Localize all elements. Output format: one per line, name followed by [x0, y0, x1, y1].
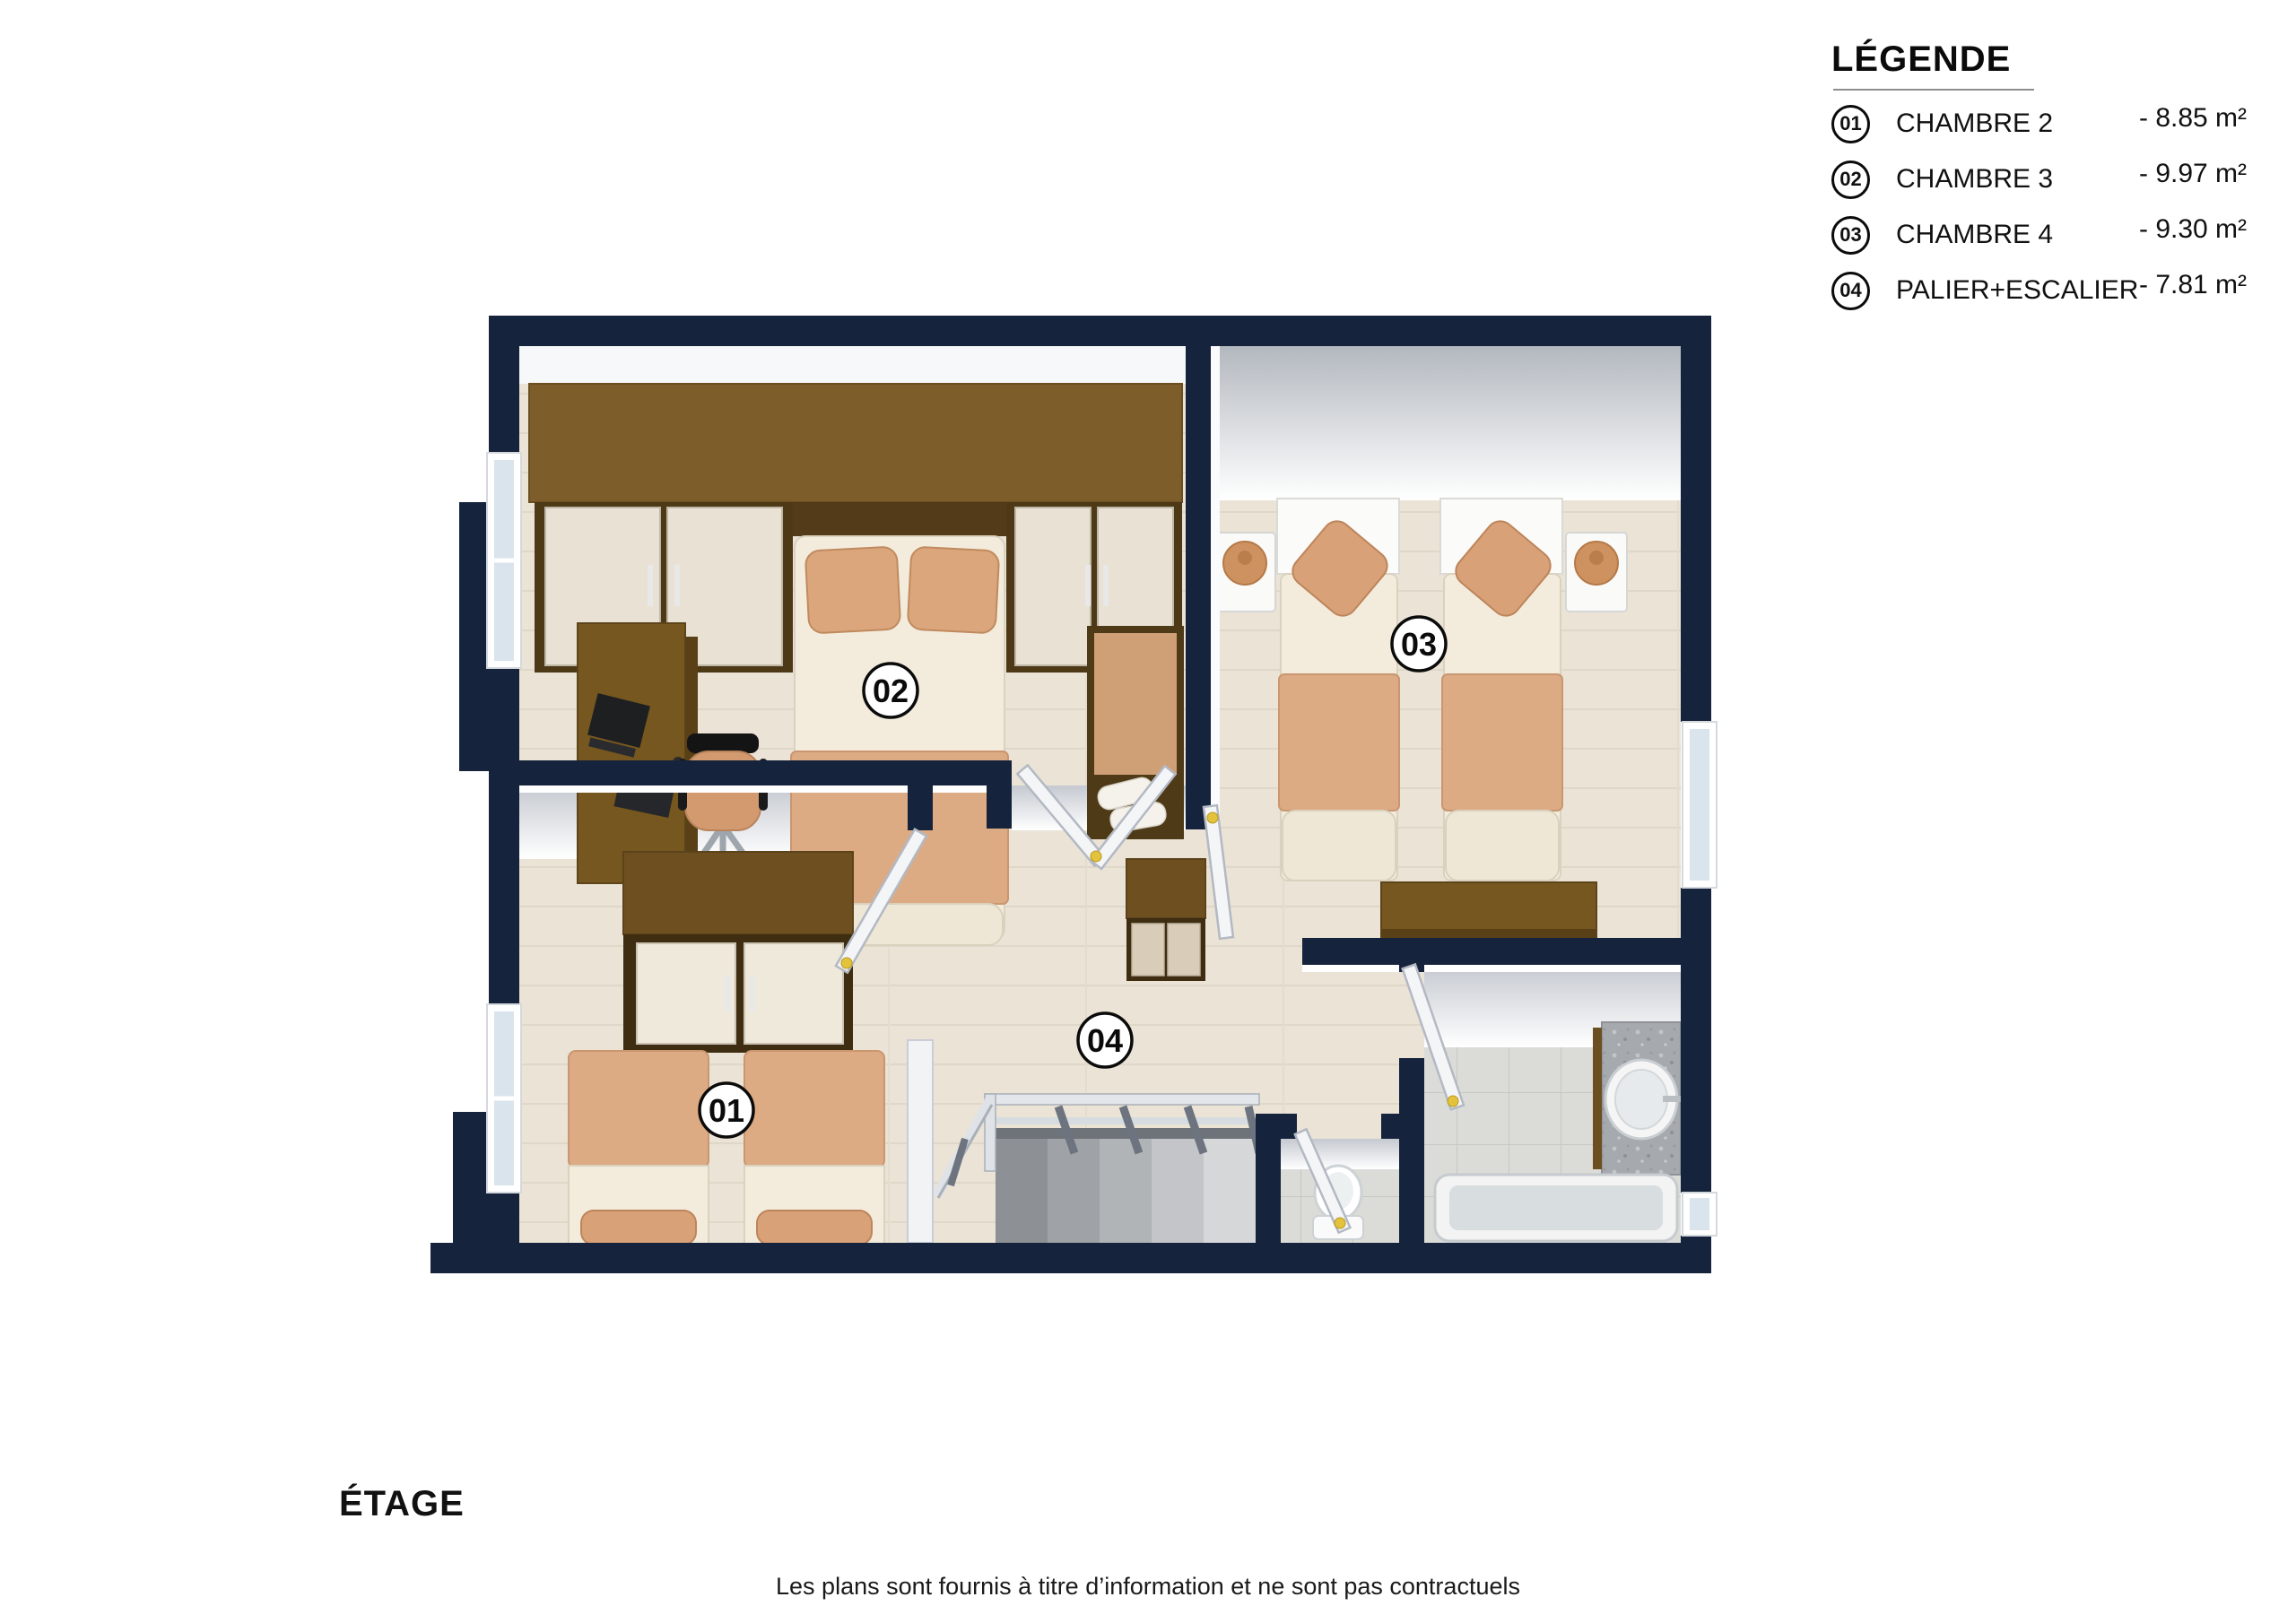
blanket: [1279, 674, 1399, 811]
legend-badge-02: 02: [1831, 161, 1870, 199]
room-03-wall-face: [1211, 346, 1681, 500]
badge-room-02: 02: [864, 664, 918, 717]
legend-area-04: - 7.81 m²: [2139, 270, 2247, 300]
pillow: [805, 546, 901, 633]
legend-area-01: - 8.85 m²: [2139, 103, 2247, 134]
legend-badge-04: 04: [1831, 272, 1870, 310]
twin-bed: [569, 1051, 709, 1245]
legend-row-03: 03 CHAMBRE 4 - 9.30 m²: [1831, 207, 2280, 263]
legend-row-02: 02 CHAMBRE 3 - 9.97 m²: [1831, 152, 2280, 207]
stair-tread: [1100, 1128, 1152, 1243]
window-room-02: [487, 453, 521, 668]
exterior-wall-bottom: [430, 1243, 1711, 1273]
wardrobe-handle: [1085, 565, 1091, 606]
disclaimer-text: Les plans sont fournis à titre d’informa…: [0, 1573, 2296, 1601]
legend-label-01: CHAMBRE 2: [1896, 108, 2139, 139]
corridor-cabinet: [1126, 859, 1205, 981]
legend: LÉGENDE 01 CHAMBRE 2 - 8.85 m² 02 CHAMBR…: [1831, 39, 2280, 318]
sink-basin: [1615, 1070, 1667, 1129]
badge-number: 04: [1087, 1022, 1123, 1059]
lamp-top: [1589, 551, 1604, 565]
exterior-wall-left: [489, 668, 519, 1004]
room-02-wall-face: [519, 346, 1186, 384]
window-room-01: [487, 1004, 521, 1193]
cabinet-door: [1132, 924, 1164, 976]
bridge-cabinet-front: [793, 502, 1006, 536]
door-handle: [1335, 1218, 1345, 1228]
pillow: [581, 1211, 696, 1245]
legend-row-01: 01 CHAMBRE 2 - 8.85 m²: [1831, 96, 2280, 152]
exterior-wall-right: [1681, 316, 1711, 722]
wall-room03-corridor: [1302, 938, 1681, 965]
window-glass: [1690, 729, 1709, 881]
blanket: [569, 1051, 709, 1167]
foot-sheet: [1446, 811, 1559, 881]
wardrobe-door: [1015, 508, 1091, 665]
exterior-wall-top: [489, 316, 1711, 346]
legend-label-03: CHAMBRE 4: [1896, 220, 2139, 250]
legend-label-02: CHAMBRE 3: [1896, 164, 2139, 195]
legend-rule: [1833, 89, 2034, 91]
lamp-top: [1238, 551, 1252, 565]
bench-cushion: [1094, 633, 1177, 775]
twin-bed: [1440, 499, 1562, 881]
blanket: [1442, 674, 1562, 811]
wardrobe-door: [637, 943, 735, 1044]
badge-room-01: 01: [700, 1083, 753, 1137]
legend-title: LÉGENDE: [1831, 39, 2280, 80]
door-handle: [1448, 1096, 1458, 1107]
legend-row-04: 04 PALIER+ESCALIER - 7.81 m²: [1831, 263, 2280, 318]
badge-number: 03: [1401, 626, 1437, 663]
vanity-cabinet-edge: [1593, 1028, 1602, 1169]
stair-shadow: [994, 1128, 1256, 1139]
wall-face-strip: [519, 785, 1012, 793]
window-room-03: [1683, 722, 1717, 888]
wardrobe-handle: [725, 976, 730, 1011]
wall-corridor-bathroom: [1399, 1058, 1424, 1243]
twin-bed: [1277, 499, 1399, 881]
wardrobe-handle: [674, 565, 680, 606]
foot-sheet: [1283, 811, 1396, 881]
legend-badge-03: 03: [1831, 216, 1870, 255]
wardrobe-door: [744, 943, 843, 1044]
wall-wc-top-end: [1381, 1114, 1399, 1139]
legend-area-03: - 9.30 m²: [2139, 214, 2247, 245]
wall-room02-room01: [519, 760, 1012, 785]
railing-rail: [985, 1094, 1259, 1105]
pillow: [757, 1211, 872, 1245]
exterior-wall-left: [489, 316, 519, 453]
window-glass: [1690, 1198, 1709, 1230]
badge-number: 01: [709, 1092, 744, 1129]
exterior-wall-left-ledge: [459, 502, 489, 771]
wardrobe-handle: [648, 565, 653, 606]
cabinet-top: [1126, 859, 1205, 918]
wall-room01-corridor-top: [908, 785, 933, 830]
exterior-wall-right: [1681, 888, 1711, 1193]
door-jamb: [987, 785, 1012, 829]
wall-wc-left: [1256, 1114, 1281, 1243]
legend-label-04: PALIER+ESCALIER: [1896, 275, 2139, 306]
chair-back: [687, 733, 759, 753]
door-handle: [841, 958, 852, 968]
stair-tread: [1152, 1128, 1204, 1243]
blanket: [744, 1051, 884, 1167]
floor-title: ÉTAGE: [339, 1484, 465, 1524]
door-handle: [1207, 812, 1218, 823]
badge-room-04: 04: [1078, 1013, 1132, 1067]
wall-room02-room03: [1186, 346, 1211, 829]
stair-tread: [1204, 1128, 1256, 1243]
wardrobe-handle: [1103, 565, 1109, 606]
wall-face-strip: [1211, 346, 1220, 829]
twin-bed: [744, 1051, 884, 1245]
badge-number: 02: [873, 673, 909, 709]
legend-area-02: - 9.97 m²: [2139, 159, 2247, 189]
door-handle: [1091, 851, 1101, 862]
faucet: [1663, 1096, 1681, 1102]
window-bathroom: [1683, 1193, 1717, 1236]
room-03-desk-edge: [1381, 929, 1596, 938]
cabinet-door: [1168, 924, 1200, 976]
wardrobe-top: [623, 852, 853, 934]
pillow: [908, 546, 1000, 633]
wardrobe-handle: [750, 976, 755, 1011]
badge-room-03: 03: [1392, 617, 1446, 671]
bathtub-basin: [1449, 1185, 1663, 1230]
legend-badge-01: 01: [1831, 105, 1870, 143]
stair-tread: [996, 1128, 1048, 1243]
wall-room01-corridor: [908, 1040, 933, 1243]
wall-face-strip: [1302, 965, 1681, 972]
wardrobe-top: [529, 384, 1182, 502]
